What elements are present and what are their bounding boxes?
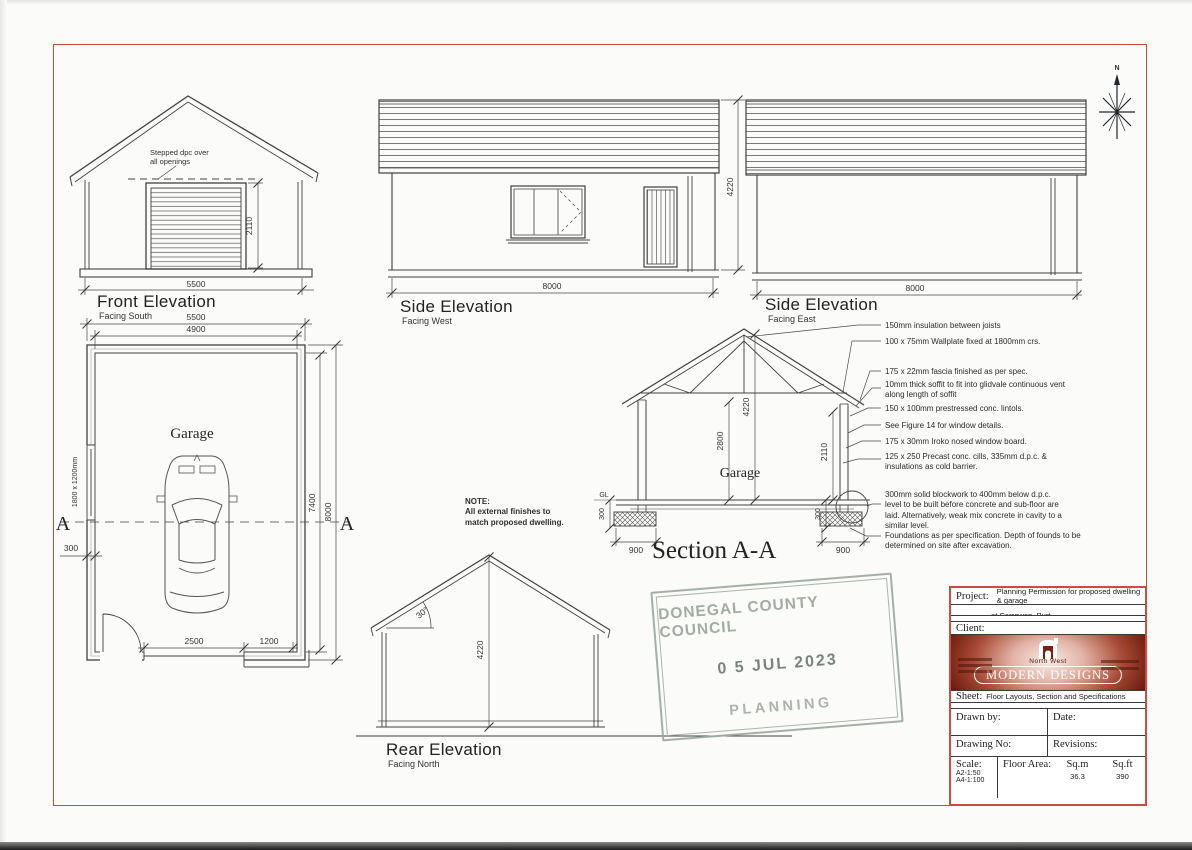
revisions-label: Revisions: (1048, 736, 1145, 750)
logo-address-line (958, 658, 992, 661)
front-elevation-title: Front Elevation (97, 292, 216, 312)
section-marker-left: A (56, 513, 71, 535)
note-cills: 125 x 250 Precast conc. cills, 335mm d.p… (885, 452, 1081, 473)
foundation-left (614, 512, 656, 526)
logo-phone-line (1101, 660, 1139, 663)
logo-company-name: MODERN DESIGNS (974, 666, 1122, 684)
side-elevation-east-drawing (746, 100, 1086, 280)
title-block: Project: Planning Permission for propose… (949, 586, 1147, 806)
logo-phone-line (1101, 667, 1139, 670)
logo-address-line (958, 664, 992, 667)
company-logo: North West MODERN DESIGNS (951, 635, 1145, 691)
note-wallplate: 100 x 75mm Wallplate fixed at 1800mm crs… (885, 337, 1140, 347)
planning-stamp: DONEGAL COUNTY COUNCIL 0 5 JUL 2023 PLAN… (650, 573, 903, 742)
external-finishes-note: NOTE: All external finishes to match pro… (465, 497, 569, 528)
plan-opening-dim: 2500 (185, 636, 204, 646)
west-elevation-title: Side Elevation (400, 297, 513, 317)
east-downpipe (1051, 178, 1055, 275)
scale-label: Scale: (951, 757, 997, 770)
sqm-value: 36.3 (1055, 772, 1100, 781)
section-left-300-dim: 300 (599, 508, 606, 520)
rear-elevation-title: Rear Elevation (386, 740, 502, 760)
north-label: N (1114, 65, 1119, 72)
ground-level-label: GL (599, 492, 608, 499)
note-window-details: See Figure 14 for window details. (885, 421, 1140, 431)
stamp-department: PLANNING (729, 695, 834, 719)
note-body: All external finishes to match proposed … (465, 507, 569, 528)
note-fascia: 175 x 22mm fascia finished as per spec. (885, 367, 1140, 377)
west-downpipe (688, 176, 692, 272)
project-label: Project: (951, 591, 989, 602)
rear-elevation-facing: Facing North (388, 759, 440, 769)
section-wall-dim: 2800 (715, 431, 725, 450)
scan-edge-bottom (0, 842, 1192, 850)
west-window (511, 186, 585, 238)
section-right-900-dim: 900 (836, 545, 850, 555)
drawing-sheet: 2110 5500 (0, 0, 1192, 850)
side-elevation-west-drawing (379, 100, 719, 277)
note-leaders (746, 325, 881, 536)
logo-address-line (958, 670, 992, 673)
dpc-note: Stepped dpc over all openings (150, 148, 242, 167)
section-left-900-dim: 900 (629, 545, 643, 555)
note-blockwork: 300mm solid blockwork to 400mm below d.p… (885, 490, 1067, 532)
section-right-300-dim: 300 (815, 508, 822, 520)
section-apex-dim: 4220 (741, 397, 751, 416)
west-elevation-facing: Facing West (402, 316, 452, 326)
sqft-label: Sq.ft (1100, 757, 1145, 772)
sqft-value: 390 (1100, 772, 1145, 781)
plan-width-outer-dim: 5500 (187, 312, 206, 322)
stamp-date: 0 5 JUL 2023 (717, 651, 839, 679)
plan-length-inner-dim: 7400 (307, 493, 317, 512)
north-compass-icon (1099, 74, 1135, 139)
rear-height-dim: 4220 (475, 640, 485, 659)
stamp-council-name: DONEGAL COUNTY COUNCIL (658, 588, 890, 642)
note-soffit: 10mm thick soffit to fit into glidvale c… (885, 380, 1085, 401)
front-door-height-dim: 2110 (244, 217, 254, 236)
plan-room-label: Garage (170, 426, 214, 442)
sheet-value: Floor Layouts, Section and Specification… (982, 692, 1125, 701)
project-value-line1: Planning Permission for proposed dwellin… (989, 588, 1145, 605)
east-elevation-facing: Facing East (768, 314, 816, 324)
car-plan-view (157, 455, 237, 613)
date-label: Date: (1048, 709, 1145, 723)
floor-plan-dimensions (60, 318, 343, 660)
note-insulation: 150mm insulation between joists (885, 321, 1140, 331)
west-width-dim: 8000 (543, 281, 562, 291)
client-label: Client: (951, 623, 985, 634)
plan-window-size-label: 1800 x 1200mm (72, 457, 79, 507)
section-door-dim: 2110 (819, 443, 829, 462)
scale-a4: A4-1:100 (951, 777, 997, 784)
note-window-board: 175 x 30mm Iroko nosed window board. (885, 437, 1140, 447)
note-foundations: Foundations as per specification. Depth … (885, 531, 1091, 552)
east-width-dim: 8000 (906, 283, 925, 293)
note-heading: NOTE: (465, 497, 569, 507)
front-elevation-facing: Facing South (99, 311, 152, 321)
sqm-label: Sq.m (1055, 757, 1100, 772)
section-room-label: Garage (720, 466, 760, 481)
sheet-label: Sheet: (951, 691, 982, 702)
section-marker-right: A (340, 513, 355, 535)
east-elevation-title: Side Elevation (765, 295, 878, 315)
planning-stamp-inner-border: DONEGAL COUNTY COUNCIL 0 5 JUL 2023 PLAN… (656, 578, 898, 736)
scale-a2: A2-1:50 (951, 770, 997, 777)
section-title: Section A-A (652, 537, 776, 565)
plan-wall-dim: 300 (64, 543, 78, 553)
roof-pitch-label: 30° (414, 605, 430, 621)
plan-door-swing (103, 614, 141, 652)
plan-width-inner-dim: 4900 (187, 324, 206, 334)
note-lintols: 150 x 100mm prestressed conc. lintols. (885, 404, 1140, 414)
front-width-dim: 5500 (187, 279, 206, 289)
west-height-dim: 4220 (725, 177, 735, 196)
front-elevation-drawing (70, 96, 318, 277)
drawing-no-label: Drawing No: (951, 736, 1047, 750)
plan-pier-dim: 1200 (260, 636, 279, 646)
floor-area-label: Floor Area: (998, 757, 1055, 798)
plan-length-outer-dim: 8000 (323, 502, 333, 521)
drawn-by-label: Drawn by: (951, 709, 1047, 723)
